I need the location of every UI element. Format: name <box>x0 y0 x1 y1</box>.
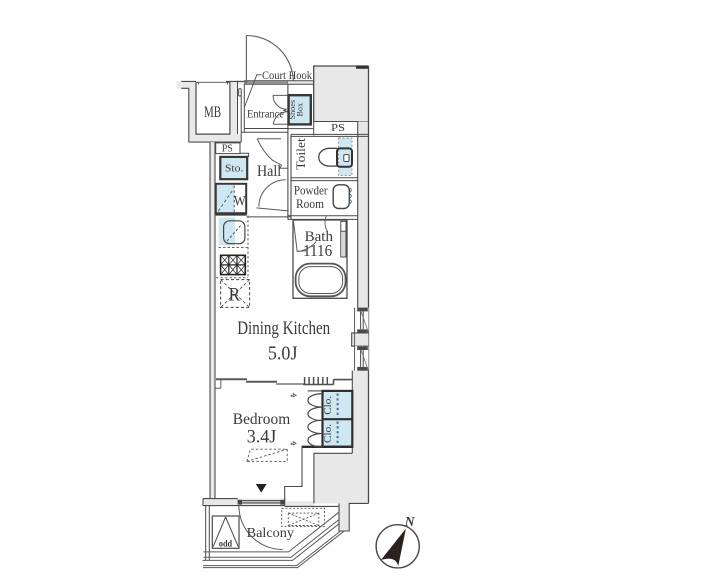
svg-text:Balcony: Balcony <box>247 525 295 540</box>
svg-text:Clo.: Clo. <box>323 424 334 443</box>
svg-text:PS: PS <box>222 144 233 155</box>
svg-text:Room: Room <box>296 196 324 211</box>
svg-text:W: W <box>234 193 246 209</box>
svg-text:Court Hook: Court Hook <box>262 68 312 82</box>
svg-text:5.0J: 5.0J <box>268 343 298 365</box>
svg-text:odd: odd <box>219 539 233 549</box>
svg-text:1116: 1116 <box>303 241 332 260</box>
svg-text:Dining Kitchen: Dining Kitchen <box>237 318 330 339</box>
svg-text:N: N <box>404 514 416 529</box>
svg-text:Sto.: Sto. <box>225 163 244 175</box>
svg-text:MB: MB <box>204 104 221 121</box>
svg-text:R: R <box>229 284 241 305</box>
svg-text:Hall: Hall <box>257 163 281 180</box>
svg-text:Box: Box <box>296 103 305 117</box>
svg-text:Toilet: Toilet <box>294 138 308 170</box>
svg-text:3.4J: 3.4J <box>247 427 277 448</box>
svg-text:Clo.: Clo. <box>323 396 334 415</box>
svg-text:PS: PS <box>331 123 345 134</box>
